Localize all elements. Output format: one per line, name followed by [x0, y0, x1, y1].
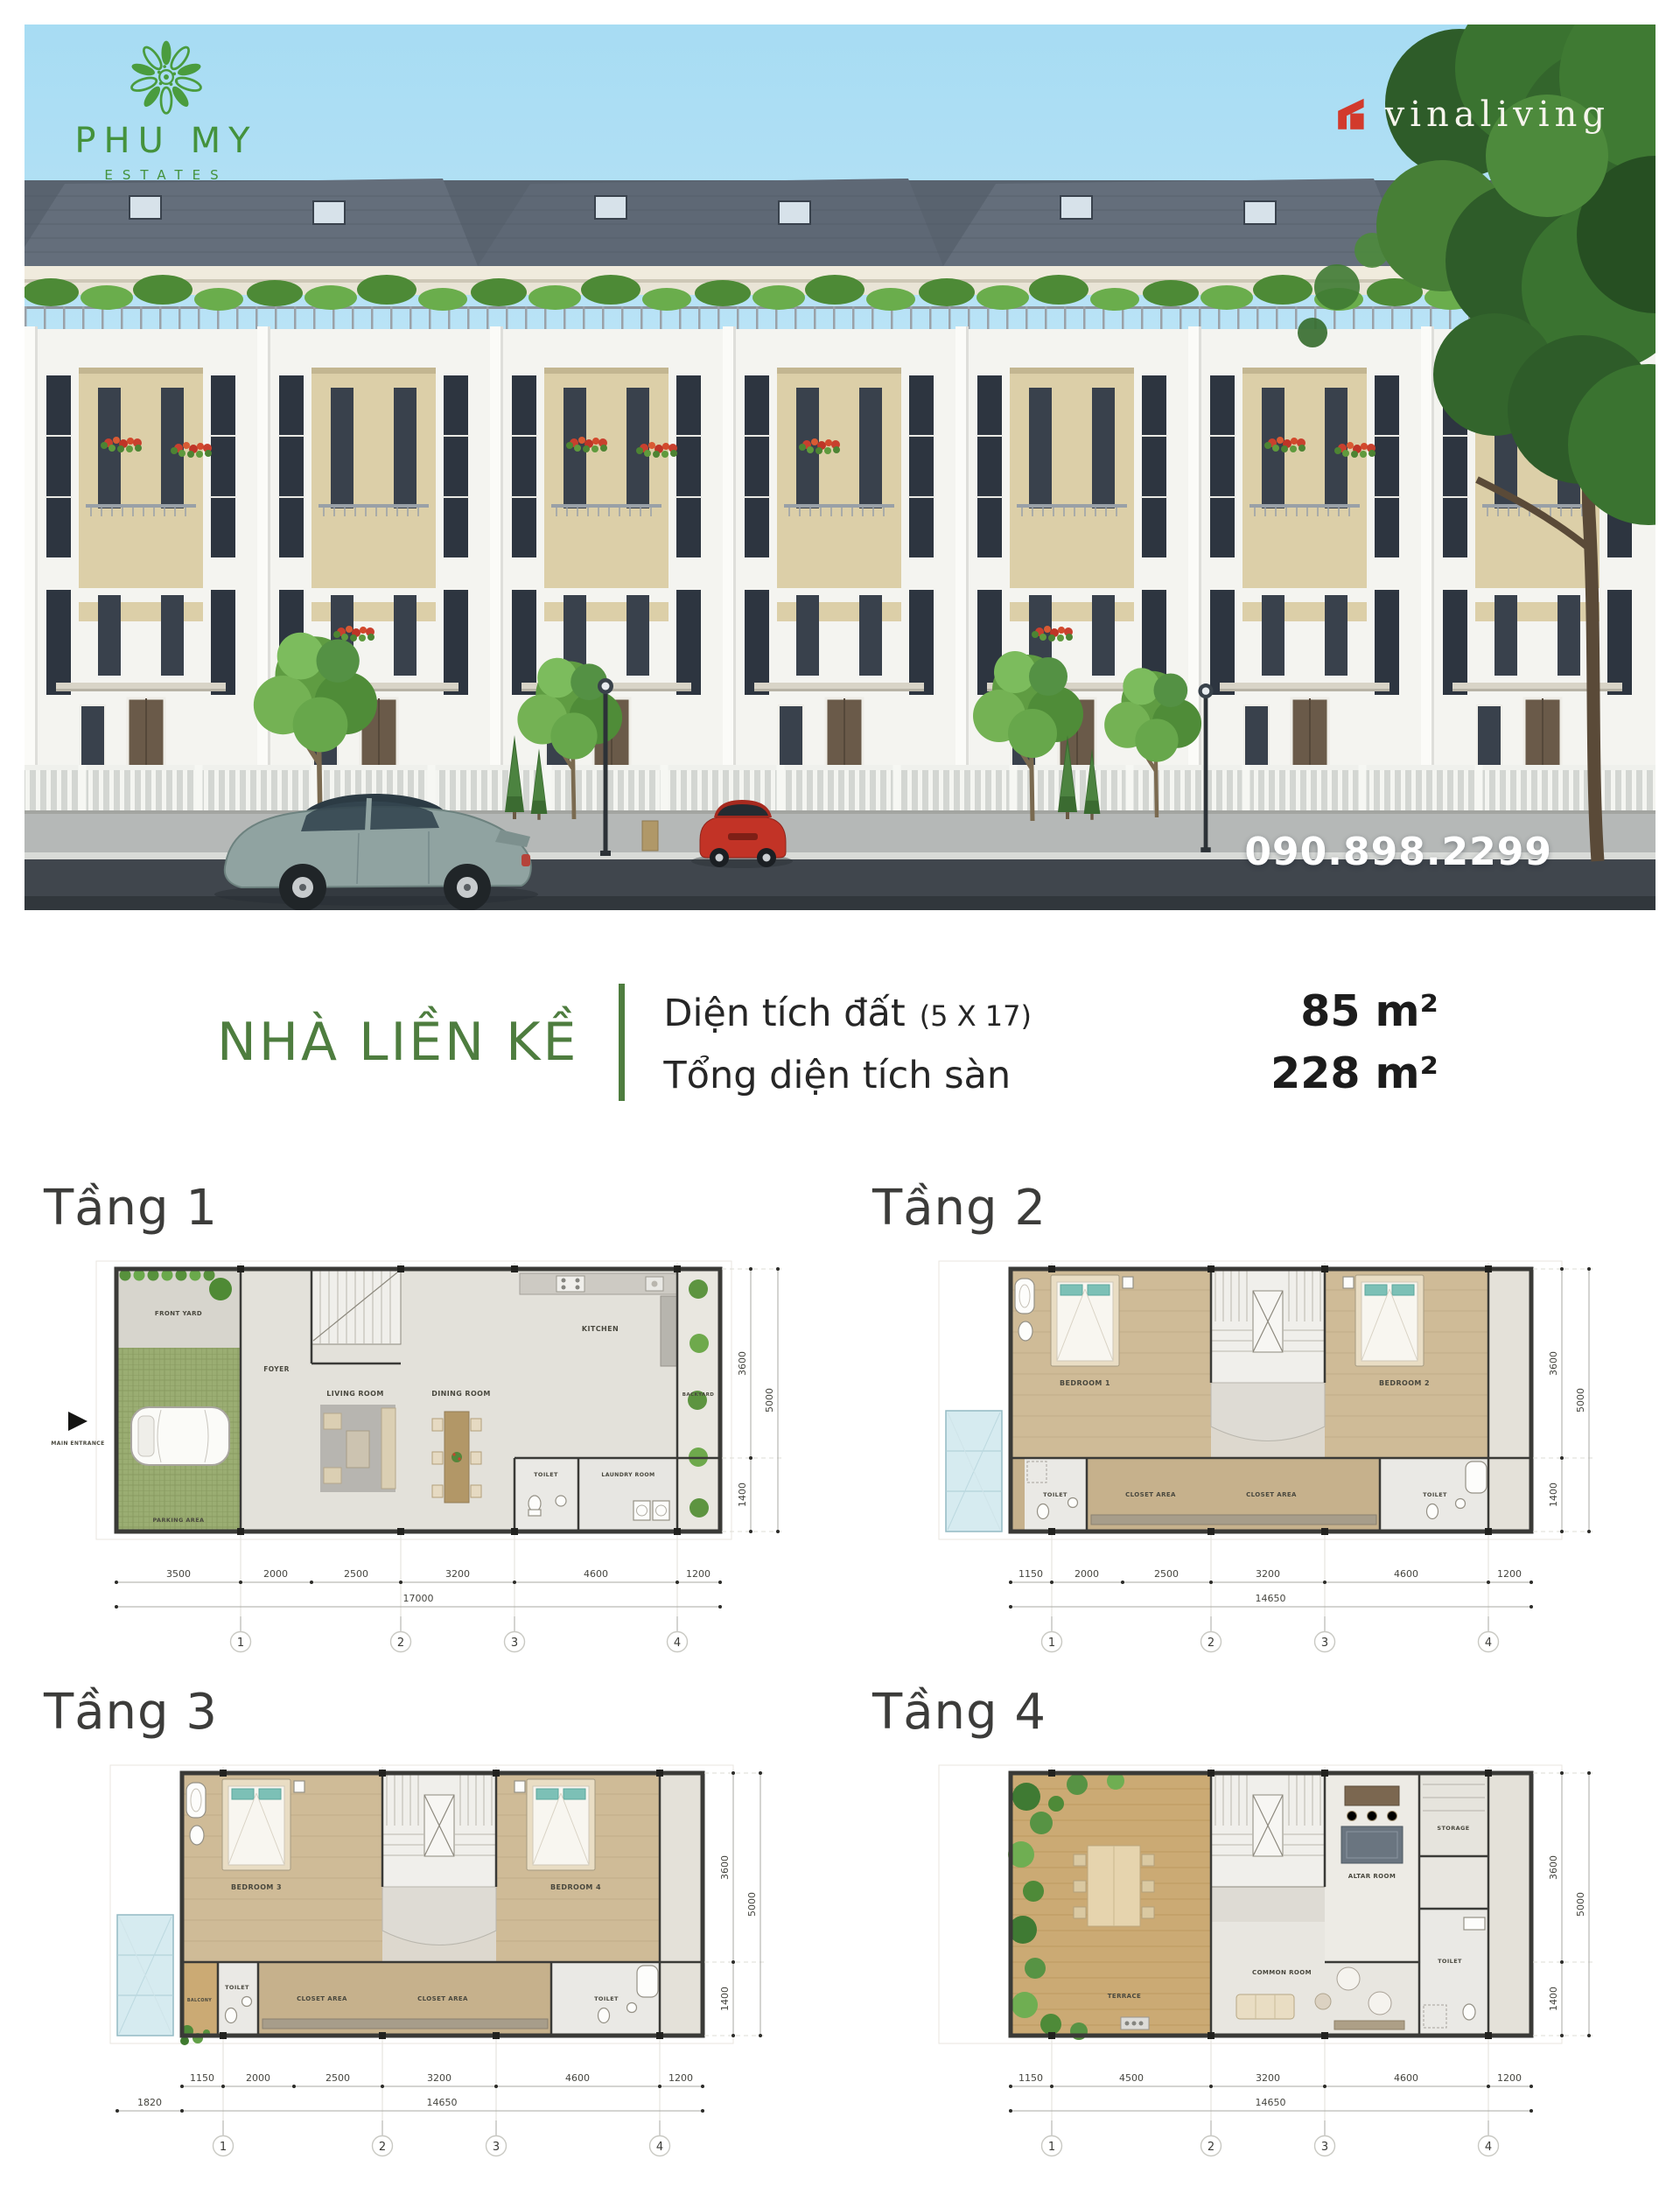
dimensions-bottom: 1150 2000 2500 3200 4600 1200 1820 14650… [115, 2072, 704, 2156]
stairs [382, 1773, 496, 1945]
spec-rows: Diện tích đất (5 X 17) 85 m² Tổng diện t… [663, 986, 1438, 1098]
label-dining: DINING ROOM [431, 1390, 490, 1398]
closet-dresser [262, 2019, 548, 2029]
floor-area-row: Tổng diện tích sàn 228 m² [663, 1048, 1438, 1098]
grid-bubbles: 1 2 3 4 [1042, 2120, 1499, 2156]
label-toilet-left: TOILET [1043, 1491, 1067, 1498]
floor1-section: Tầng 1 [33, 1180, 825, 1676]
dim-total: 14650 [427, 2097, 458, 2108]
dim-total: 17000 [403, 1593, 434, 1604]
dim-5000: 5000 [764, 1388, 775, 1412]
grid-2: 2 [397, 1637, 404, 1650]
grid-2: 2 [1207, 1637, 1214, 1650]
floor-area-value: 228 m² [1270, 1048, 1438, 1098]
bed-2 [1343, 1275, 1424, 1366]
grid-4: 4 [674, 1637, 681, 1650]
dim-1150: 1150 [1018, 2072, 1043, 2084]
product-title: NHÀ LIỀN KỀ [217, 1012, 578, 1073]
grid-2: 2 [1207, 2141, 1214, 2154]
floor4-drawing: TERRACE COMMON ROOM ALTAR ROOM STORAGE T… [862, 1742, 1654, 2180]
grid-4: 4 [1485, 1637, 1492, 1650]
car-top-view [131, 1407, 229, 1465]
label-toilet-right: TOILET [594, 1995, 619, 2002]
label-foyer: FOYER [263, 1365, 290, 1373]
dim-1200: 1200 [1497, 2072, 1522, 2084]
dimensions-right: 3600 1400 5000 [1533, 1267, 1595, 1533]
dim-1400: 1400 [737, 1483, 748, 1507]
label-closet-right: CLOSET AREA [417, 1995, 468, 2002]
dim-3600: 3600 [1548, 1351, 1559, 1376]
floor2-section: Tầng 2 [862, 1180, 1654, 1676]
floor4-title: Tầng 4 [872, 1684, 1654, 1741]
terrace-dining-set [1074, 1846, 1154, 1926]
grid-2: 2 [379, 2141, 386, 2154]
dim-1400: 1400 [1548, 1987, 1559, 2011]
dim-total: 14650 [1256, 1593, 1286, 1604]
logo-subtitle: ESTATES [63, 167, 269, 183]
floor2-title: Tầng 2 [872, 1180, 1654, 1237]
closet-dresser [1091, 1515, 1376, 1525]
logo-title: PHU MY [63, 121, 269, 161]
grid-1: 1 [237, 1637, 244, 1650]
grid-3: 3 [1321, 2141, 1328, 2154]
brand-name: vinaliving [1385, 95, 1610, 135]
trash-bin [642, 821, 658, 851]
dimensions-right: 3600 1400 5000 [1533, 1771, 1595, 2037]
entrance-arrow-icon [68, 1412, 87, 1431]
label-common-room: COMMON ROOM [1252, 1969, 1312, 1976]
floor1-plan [68, 1265, 720, 1535]
label-closet-left: CLOSET AREA [297, 1995, 347, 2002]
dim-3200: 3200 [427, 2072, 451, 2084]
dim-2000: 2000 [1074, 1568, 1099, 1580]
dim-1200: 1200 [1497, 1568, 1522, 1580]
label-terrace: TERRACE [1108, 1993, 1141, 2000]
dim-3600: 3600 [737, 1351, 748, 1376]
dim-2000: 2000 [263, 1568, 288, 1580]
dimensions-bottom: 3500 2000 2500 3200 4600 1200 17000 1 2 … [115, 1568, 722, 1652]
label-living: LIVING ROOM [326, 1390, 383, 1398]
brochure-page: PHU MY ESTATES vinaliving 090.898.2299 N… [0, 0, 1680, 2187]
label-parking: PARKING AREA [152, 1517, 204, 1524]
grid-bubbles: 1 2 3 4 [213, 2120, 670, 2156]
dimensions-bottom: 1150 2000 2500 3200 4600 1200 14650 1 2 … [1009, 1568, 1533, 1652]
label-main-entrance: MAIN ENTRANCE [51, 1440, 104, 1447]
dim-3200: 3200 [1256, 1568, 1280, 1580]
label-bedroom2: BEDROOM 2 [1379, 1379, 1430, 1387]
stairs [311, 1269, 401, 1344]
dimensions-bottom: 1150 4500 3200 4600 1200 14650 1 2 3 4 [1009, 2072, 1533, 2156]
dim-4500: 4500 [1119, 2072, 1144, 2084]
grid-bubbles: 1 2 3 4 [231, 1616, 688, 1652]
floor1-drawing: MAIN ENTRANCE FRONT YARD FOYER LIVING RO… [33, 1238, 825, 1676]
label-laundry: LAUNDRY ROOM [601, 1472, 654, 1478]
grid-3: 3 [493, 2141, 500, 2154]
label-kitchen: KITCHEN [582, 1325, 619, 1333]
dim-3600: 3600 [1548, 1855, 1559, 1880]
dining-furniture [432, 1412, 481, 1503]
living-room-furniture [320, 1405, 395, 1492]
land-area-label: Diện tích đất [663, 992, 905, 1035]
floor4-section: Tầng 4 [862, 1684, 1654, 2180]
dim-2000: 2000 [246, 2072, 270, 2084]
dim-5000: 5000 [1575, 1388, 1586, 1412]
label-storage: STORAGE [1437, 1825, 1469, 1832]
label-balcony: BALCONY [187, 1998, 212, 2003]
dim-3600: 3600 [719, 1855, 731, 1880]
grid-4: 4 [1485, 2141, 1492, 2154]
dim-4600: 4600 [1394, 1568, 1418, 1580]
land-area-value: 85 m² [1300, 986, 1438, 1036]
grid-4: 4 [656, 2141, 663, 2154]
label-altar-room: ALTAR ROOM [1348, 1873, 1396, 1880]
floor3-title: Tầng 3 [44, 1684, 825, 1741]
divider [619, 984, 625, 1101]
vinaliving-logo: vinaliving [1333, 95, 1610, 135]
dim-1150: 1150 [190, 2072, 214, 2084]
label-bedroom1: BEDROOM 1 [1060, 1379, 1110, 1387]
bed-4 [514, 1779, 595, 1870]
label-closet-left: CLOSET AREA [1125, 1491, 1176, 1498]
dim-1400: 1400 [1548, 1483, 1559, 1507]
label-closet-right: CLOSET AREA [1246, 1491, 1297, 1498]
grid-3: 3 [511, 1637, 518, 1650]
terrace-grill [1121, 2017, 1149, 2029]
label-backyard: BACKYARD [682, 1392, 714, 1398]
floor3-plan [180, 1770, 703, 2045]
label-toilet: TOILET [534, 1471, 558, 1478]
dim-4600: 4600 [584, 1568, 608, 1580]
floor3-drawing: BEDROOM 3 BEDROOM 4 BALCONY TOILET CLOSE… [33, 1742, 825, 2180]
label-front-yard: FRONT YARD [155, 1310, 202, 1317]
grid-1: 1 [1048, 2141, 1055, 2154]
dim-2500: 2500 [344, 1568, 368, 1580]
dim-1400: 1400 [719, 1987, 731, 2011]
dim-1200: 1200 [686, 1568, 710, 1580]
floor2-drawing: BEDROOM 1 BEDROOM 2 TOILET CLOSET AREA C… [862, 1238, 1654, 1676]
skylight [946, 1411, 1002, 1532]
phu-my-logo: PHU MY ESTATES [63, 37, 269, 183]
label-toilet: TOILET [1438, 1958, 1462, 1965]
flower-icon [126, 37, 206, 117]
dim-1820: 1820 [137, 2097, 162, 2108]
dim-4600: 4600 [1394, 2072, 1418, 2084]
dim-2500: 2500 [1154, 1568, 1179, 1580]
grid-3: 3 [1321, 1637, 1328, 1650]
floor-area-label: Tổng diện tích sàn [663, 1054, 1011, 1097]
floor3-section: Tầng 3 [33, 1684, 825, 2180]
floor1-title: Tầng 1 [44, 1180, 825, 1237]
vinaliving-icon [1333, 96, 1373, 133]
label-bedroom3: BEDROOM 3 [231, 1883, 282, 1891]
dim-total: 14650 [1256, 2097, 1286, 2108]
dim-5000: 5000 [746, 1892, 758, 1917]
stairs [1211, 1269, 1325, 1441]
stairs [1211, 1773, 1325, 1887]
land-area-note: (5 X 17) [920, 999, 1032, 1033]
dim-2500: 2500 [325, 2072, 350, 2084]
phone-number: 090.898.2299 [1244, 830, 1552, 874]
fence [24, 765, 1655, 814]
hero-rendering: PHU MY ESTATES vinaliving 090.898.2299 [24, 25, 1655, 910]
label-bedroom4: BEDROOM 4 [550, 1883, 601, 1891]
dim-3200: 3200 [1256, 2072, 1280, 2084]
dim-3500: 3500 [166, 1568, 191, 1580]
dim-1150: 1150 [1018, 1568, 1043, 1580]
label-toilet-right: TOILET [1423, 1491, 1447, 1498]
skylight [117, 1915, 173, 2036]
summary-section: NHÀ LIỀN KỀ Diện tích đất (5 X 17) 85 m²… [217, 984, 1438, 1101]
dim-3200: 3200 [445, 1568, 470, 1580]
dim-4600: 4600 [565, 2072, 590, 2084]
grid-1: 1 [220, 2141, 227, 2154]
grid-bubbles: 1 2 3 4 [1042, 1616, 1499, 1652]
dimensions-right: 3600 1400 5000 [704, 1771, 766, 2037]
label-toilet-left: TOILET [225, 1984, 249, 1991]
dim-1200: 1200 [668, 2072, 693, 2084]
dim-5000: 5000 [1575, 1892, 1586, 1917]
grid-1: 1 [1048, 1637, 1055, 1650]
land-area-row: Diện tích đất (5 X 17) 85 m² [663, 986, 1438, 1036]
floor4-plan [1008, 1770, 1531, 2040]
